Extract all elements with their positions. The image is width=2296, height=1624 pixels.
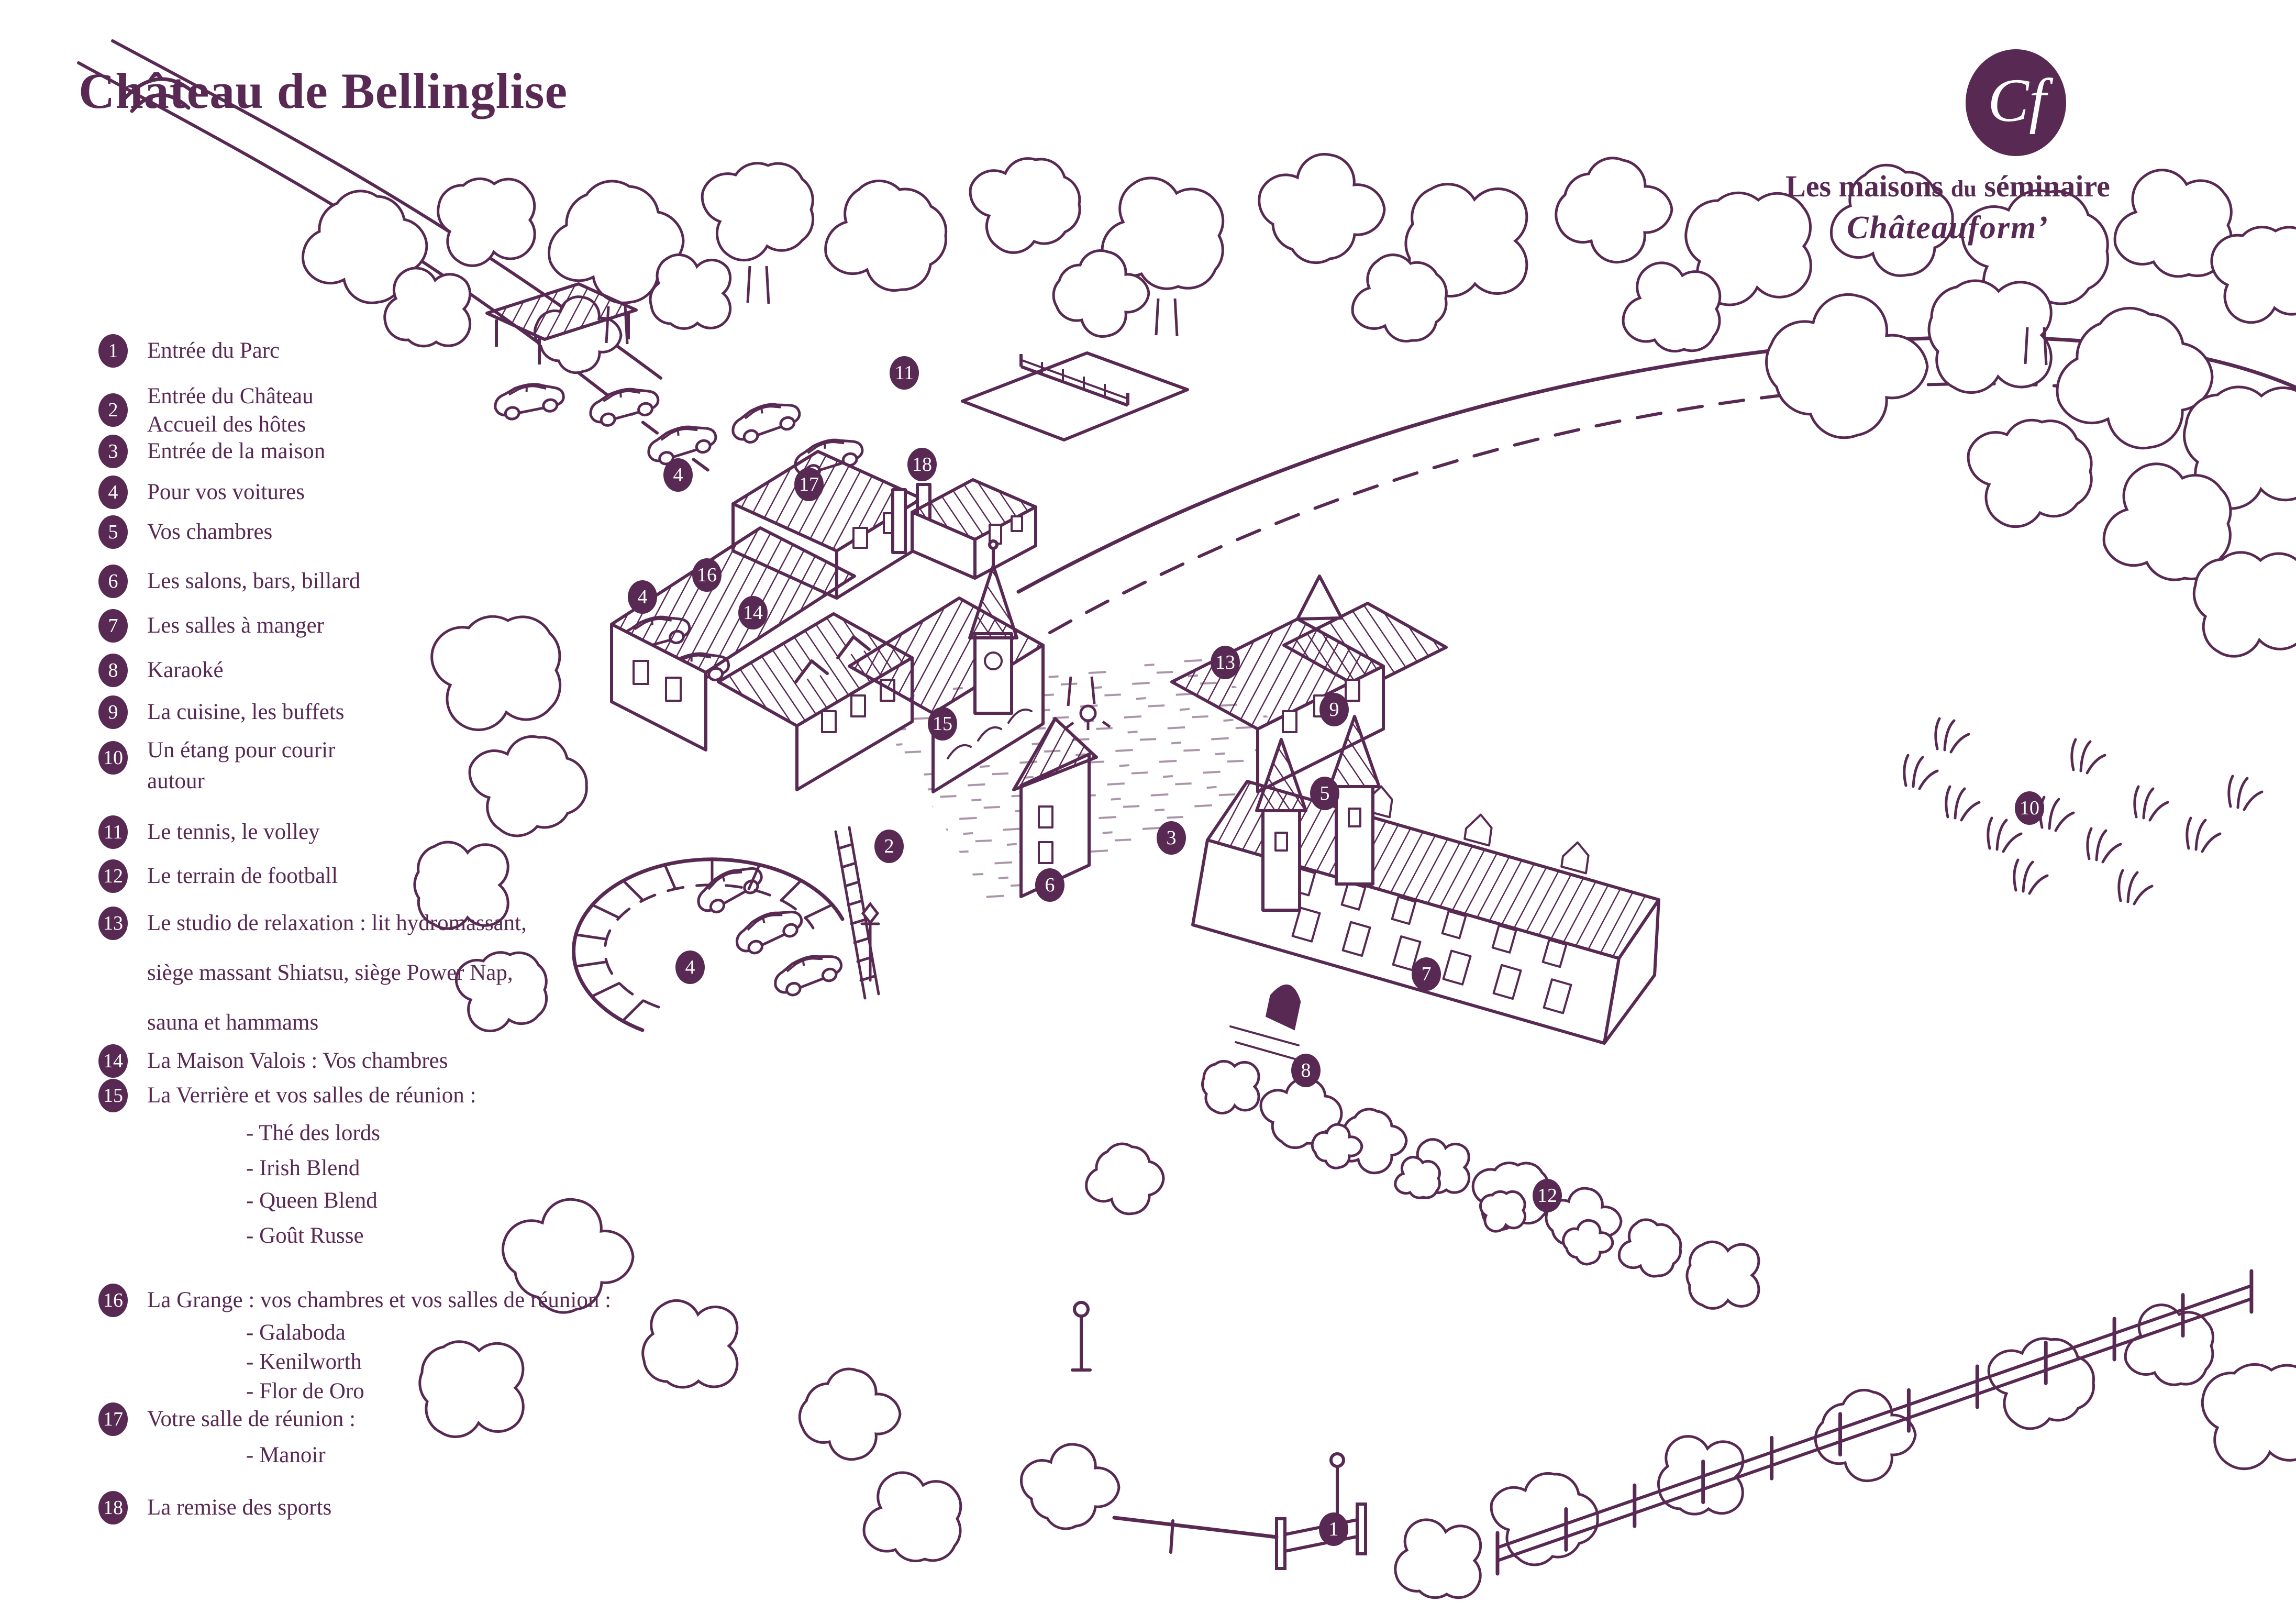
legend-label-9: La cuisine, les buffets xyxy=(147,698,345,727)
legend-badge-2: 2 xyxy=(98,393,128,427)
map-marker-5: 5 xyxy=(1310,777,1339,810)
legend-label-13: siège massant Shiatsu, siège Power Nap, xyxy=(147,958,513,988)
legend-badge-6: 6 xyxy=(98,565,128,598)
garden-hedge xyxy=(1203,1061,1759,1308)
legend-label-6: Les salons, bars, billard xyxy=(147,567,360,596)
legend-badge-15: 15 xyxy=(98,1079,128,1112)
legend-badge-17: 17 xyxy=(98,1402,128,1436)
legend-label-8: Karaoké xyxy=(147,656,224,685)
page-title: Château de Bellinglise xyxy=(79,62,568,120)
map-marker-9: 9 xyxy=(1319,693,1349,726)
map-marker-6: 6 xyxy=(1035,868,1064,902)
legend-badge-14: 14 xyxy=(98,1044,128,1078)
legend-sub-15: - Thé des lords xyxy=(246,1119,380,1148)
chateau-map-page: Château de Bellinglise Cf Les maisons du… xyxy=(0,0,2296,1624)
map-marker-16: 16 xyxy=(692,558,722,592)
legend-badge-10: 10 xyxy=(98,741,128,775)
map-marker-3: 3 xyxy=(1157,821,1186,855)
legend-label-12: Le terrain de football xyxy=(147,861,338,891)
legend-badge-9: 9 xyxy=(98,695,128,729)
chateauform-logo: Cf xyxy=(1966,49,2066,156)
forecourt-fence xyxy=(836,827,879,998)
legend-label-15: La Verrière et vos salles de réunion : xyxy=(147,1081,476,1110)
map-marker-4: 4 xyxy=(675,951,705,984)
legend-sub-17: - Manoir xyxy=(246,1441,326,1470)
legend-label-1: Entrée du Parc xyxy=(147,336,280,366)
legend-label-11: Le tennis, le volley xyxy=(147,817,320,847)
legend-label-10: Un étang pour courir xyxy=(147,736,335,765)
legend-badge-13: 13 xyxy=(98,907,128,940)
legend-badge-8: 8 xyxy=(98,654,128,687)
map-marker-7: 7 xyxy=(1412,957,1441,991)
entrance-gate xyxy=(1114,1454,1366,1568)
legend-label-4: Pour vos voitures xyxy=(147,478,305,507)
legend-badge-7: 7 xyxy=(98,609,128,643)
car-icon xyxy=(492,379,566,422)
car-icon xyxy=(692,858,768,918)
map-marker-12: 12 xyxy=(1533,1179,1562,1212)
map-marker-10: 10 xyxy=(2015,791,2044,825)
circular-drive xyxy=(574,859,842,1030)
logo-monogram-icon: Cf xyxy=(1988,70,2046,131)
legend-sub-15: - Queen Blend xyxy=(246,1186,378,1216)
brand-line1: Les maisons du séminaire xyxy=(1744,169,2152,204)
lawn-lamp xyxy=(1072,1302,1090,1370)
legend-label-13: Le studio de relaxation : lit hydromassa… xyxy=(147,909,527,938)
legend-badge-11: 11 xyxy=(98,815,128,849)
legend-label-3: Entrée de la maison xyxy=(147,437,325,466)
map-marker-17: 17 xyxy=(794,468,824,501)
brand-line2: Châteauform’ xyxy=(1744,209,2152,247)
legend-label-2: Accueil des hôtes xyxy=(147,410,306,439)
map-marker-13: 13 xyxy=(1211,646,1240,679)
legend-label-5: Vos chambres xyxy=(147,517,272,547)
legend-label-7: Les salles à manger xyxy=(147,611,324,640)
legend-badge-18: 18 xyxy=(98,1491,128,1524)
legend-badge-16: 16 xyxy=(98,1284,128,1317)
map-marker-2: 2 xyxy=(874,830,904,863)
legend-label-17: Votre salle de réunion : xyxy=(147,1405,356,1434)
legend-label-2: Entrée du Château xyxy=(147,382,314,411)
legend-label-14: La Maison Valois : Vos chambres xyxy=(147,1046,448,1076)
car-icon xyxy=(770,947,846,1000)
map-marker-1: 1 xyxy=(1319,1512,1348,1546)
legend-badge-5: 5 xyxy=(98,515,128,549)
map-marker-15: 15 xyxy=(928,707,957,741)
car-icon xyxy=(731,902,807,959)
legend-sub-16: - Flor de Oro xyxy=(246,1377,364,1406)
pond-reeds xyxy=(1904,719,2262,904)
map-marker-14: 14 xyxy=(738,596,768,629)
legend-badge-4: 4 xyxy=(98,476,128,509)
legend-label-10: autour xyxy=(147,767,205,796)
map-marker-11: 11 xyxy=(890,356,919,390)
legend-label-16: La Grange : vos chambres et vos salles d… xyxy=(147,1286,611,1315)
car-icon xyxy=(728,396,804,447)
map-marker-8: 8 xyxy=(1291,1054,1321,1087)
legend-sub-15: - Goût Russe xyxy=(246,1221,364,1251)
courtyard-lamp xyxy=(862,904,879,980)
legend-label-13: sauna et hammams xyxy=(147,1008,318,1037)
legend-sub-16: - Galaboda xyxy=(246,1318,346,1347)
map-marker-18: 18 xyxy=(907,448,937,481)
tennis-court xyxy=(962,353,1188,440)
legend-sub-15: - Irish Blend xyxy=(246,1154,360,1183)
legend-sub-16: - Kenilworth xyxy=(246,1347,362,1377)
map-marker-4: 4 xyxy=(628,580,657,614)
legend-badge-3: 3 xyxy=(98,435,128,468)
legend-badge-1: 1 xyxy=(98,334,128,368)
legend-badge-12: 12 xyxy=(98,859,128,893)
gate-lamp xyxy=(1331,1454,1344,1513)
legend-label-18: La remise des sports xyxy=(147,1493,331,1522)
map-marker-4: 4 xyxy=(663,458,693,492)
